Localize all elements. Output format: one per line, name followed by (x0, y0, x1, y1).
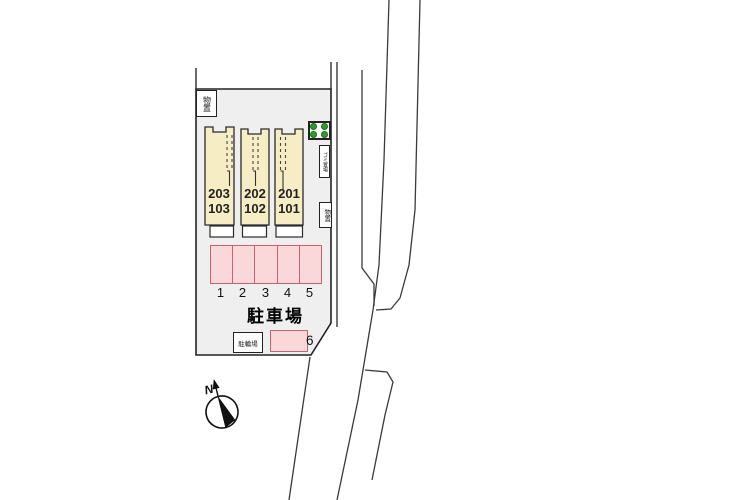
site-plan-drawing: N (0, 0, 750, 500)
parking-space (277, 246, 299, 283)
planting-dots (310, 123, 329, 138)
storage-top-label: 物置 (203, 96, 211, 112)
parking-number-6: 6 (306, 333, 314, 348)
storage-box-right: 物置 (319, 202, 332, 228)
parking-space (211, 246, 232, 283)
unit-numbers-2: 202 102 (237, 186, 273, 216)
bicycle-parking-label: 駐輪場 (238, 338, 258, 348)
parking-space (232, 246, 254, 283)
parking-number-1: 1 (209, 285, 232, 300)
north-compass: N (198, 375, 241, 431)
plant-dot (310, 131, 317, 138)
unit-numbers-3: 201 101 (271, 186, 307, 216)
bicycle-parking-box: 駐輪場 (233, 332, 263, 353)
unit-lower: 101 (271, 201, 307, 216)
parking-space-6 (270, 330, 308, 352)
parking-lot-title: 駐車場 (247, 302, 304, 327)
storage-right-label: 物置 (322, 209, 329, 222)
site-plan: N 物置 ゴミ置場 物置 203 103 202 102 201 101 (0, 0, 750, 500)
parking-number-4: 4 (276, 285, 299, 300)
unit-upper: 203 (201, 186, 237, 201)
unit-upper: 201 (271, 186, 307, 201)
parking-space (299, 246, 321, 283)
garbage-label: ゴミ置場 (322, 152, 327, 172)
parking-number-2: 2 (231, 285, 254, 300)
lane-edge-lower (289, 357, 310, 500)
entrance-steps (210, 226, 303, 237)
planting-box (308, 121, 331, 140)
plant-dot (321, 123, 328, 130)
plant-dot (310, 123, 317, 130)
road-branch-lower (365, 370, 393, 480)
road-edge-main (337, 0, 389, 500)
garbage-box: ゴミ置場 (319, 145, 330, 178)
unit-upper: 202 (237, 186, 273, 201)
parking-strip (210, 245, 322, 284)
parking-number-3: 3 (254, 285, 277, 300)
unit-numbers-1: 203 103 (201, 186, 237, 216)
road-edge-far (376, 0, 420, 310)
unit-lower: 103 (201, 201, 237, 216)
parking-space (254, 246, 276, 283)
road-edge-inner (362, 70, 374, 306)
storage-box-top: 物置 (196, 90, 217, 117)
plant-dot (321, 131, 328, 138)
parking-number-5: 5 (298, 285, 321, 300)
north-label: N (203, 382, 215, 398)
unit-lower: 102 (237, 201, 273, 216)
